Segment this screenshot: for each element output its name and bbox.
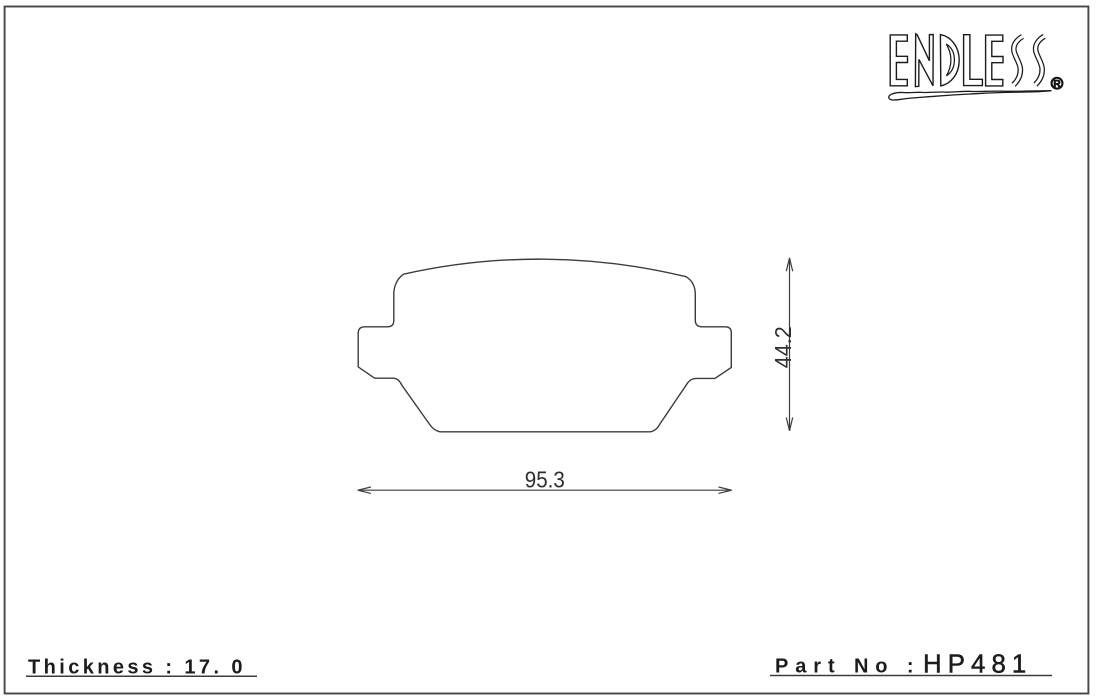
svg-text:Part No :: Part No :: [775, 656, 920, 678]
svg-text:95.3: 95.3: [525, 467, 565, 493]
svg-text:Thickness : 17. 0: Thickness : 17. 0: [28, 657, 246, 679]
svg-text:44.2: 44.2: [770, 326, 796, 368]
svg-text:R: R: [1053, 79, 1061, 90]
svg-text:HP481: HP481: [923, 651, 1032, 679]
